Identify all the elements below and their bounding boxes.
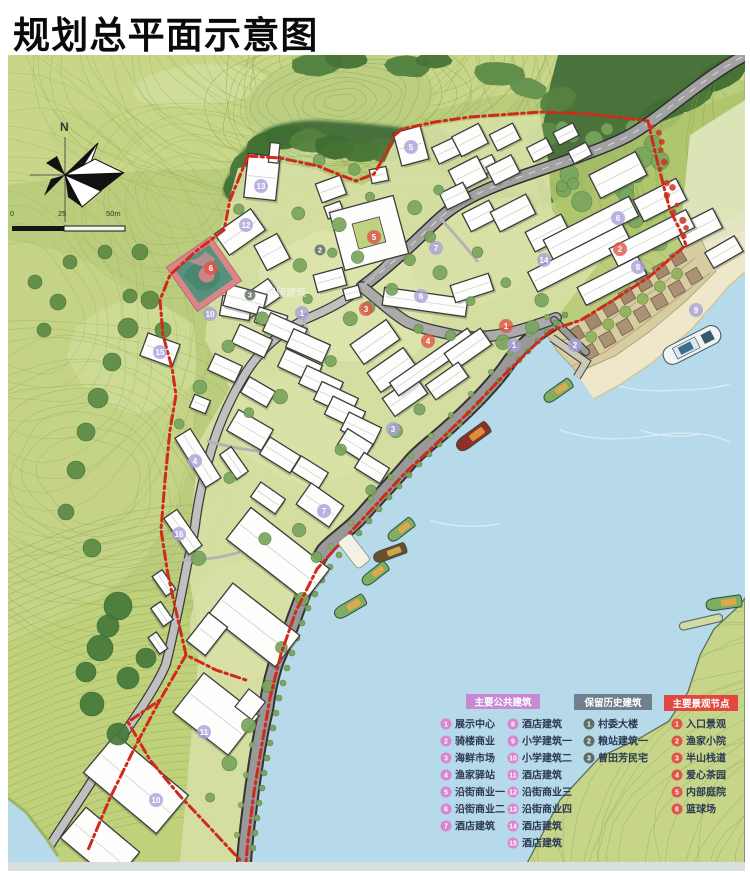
svg-text:酒店建筑: 酒店建筑 <box>455 820 495 833</box>
svg-text:7: 7 <box>322 507 327 516</box>
svg-text:沿街商业三: 沿街商业三 <box>522 786 572 799</box>
svg-text:沿街商业二: 沿街商业二 <box>455 803 505 816</box>
svg-text:主要公共建筑: 主要公共建筑 <box>474 697 532 709</box>
svg-text:2: 2 <box>618 245 623 254</box>
svg-text:10: 10 <box>206 310 215 319</box>
svg-text:展示中心: 展示中心 <box>455 718 495 731</box>
svg-text:保留建筑: 保留建筑 <box>266 286 306 299</box>
svg-text:酒店建筑: 酒店建筑 <box>522 718 562 731</box>
svg-text:3: 3 <box>248 293 252 300</box>
svg-text:半山栈道: 半山栈道 <box>686 752 726 765</box>
svg-text:4: 4 <box>426 337 431 346</box>
svg-text:8: 8 <box>636 263 641 272</box>
svg-text:沿街商业四: 沿街商业四 <box>522 803 572 816</box>
svg-text:骑楼商业: 骑楼商业 <box>455 735 495 748</box>
svg-text:N: N <box>60 120 69 134</box>
svg-text:25: 25 <box>58 209 66 218</box>
svg-text:小学建筑二: 小学建筑二 <box>521 752 572 765</box>
svg-text:15: 15 <box>156 348 165 357</box>
svg-text:2: 2 <box>318 248 322 255</box>
svg-text:曾田芳民宅: 曾田芳民宅 <box>598 752 648 765</box>
svg-text:1: 1 <box>444 722 448 729</box>
svg-text:7: 7 <box>434 244 439 253</box>
svg-text:3: 3 <box>391 425 396 434</box>
svg-text:10: 10 <box>152 796 161 805</box>
svg-text:16: 16 <box>175 530 184 539</box>
svg-text:小学建筑一: 小学建筑一 <box>521 735 572 748</box>
svg-text:9: 9 <box>511 739 515 746</box>
svg-text:3: 3 <box>444 756 448 763</box>
svg-text:11: 11 <box>509 773 517 780</box>
svg-text:1: 1 <box>587 722 591 729</box>
svg-text:酒店建筑: 酒店建筑 <box>522 820 562 833</box>
svg-text:2: 2 <box>444 739 448 746</box>
svg-text:酒店建筑: 酒店建筑 <box>522 769 562 782</box>
svg-text:1: 1 <box>512 341 517 350</box>
svg-text:5: 5 <box>372 233 377 242</box>
svg-text:篮球场: 篮球场 <box>685 803 716 816</box>
svg-text:9: 9 <box>694 306 699 315</box>
svg-text:13: 13 <box>257 182 266 191</box>
svg-text:2: 2 <box>587 739 591 746</box>
svg-text:12: 12 <box>242 221 251 230</box>
svg-text:村委大楼: 村委大楼 <box>598 718 638 731</box>
svg-text:3: 3 <box>587 756 591 763</box>
svg-text:渔家小院: 渔家小院 <box>686 735 726 748</box>
svg-text:内部庭院: 内部庭院 <box>686 786 726 799</box>
svg-text:0: 0 <box>10 209 14 218</box>
svg-text:14: 14 <box>509 824 517 831</box>
svg-text:保留历史建筑: 保留历史建筑 <box>583 697 642 709</box>
svg-text:1: 1 <box>300 309 305 318</box>
svg-text:5: 5 <box>409 143 414 152</box>
svg-text:13: 13 <box>509 807 517 814</box>
svg-text:规划总平面示意图: 规划总平面示意图 <box>13 15 319 56</box>
svg-text:12: 12 <box>509 790 517 797</box>
svg-text:爱心茶园: 爱心茶园 <box>686 769 726 782</box>
svg-text:6: 6 <box>444 807 448 814</box>
svg-text:5: 5 <box>675 790 679 797</box>
svg-text:14: 14 <box>540 256 549 265</box>
svg-text:6: 6 <box>209 264 214 273</box>
svg-text:11: 11 <box>200 728 209 737</box>
svg-text:7: 7 <box>444 824 448 831</box>
svg-text:沿街商业一: 沿街商业一 <box>455 786 505 799</box>
svg-text:15: 15 <box>509 841 517 848</box>
svg-text:4: 4 <box>193 457 198 466</box>
svg-text:10: 10 <box>509 756 517 763</box>
svg-text:粮站建筑一: 粮站建筑一 <box>598 735 648 748</box>
svg-text:渔家驿站: 渔家驿站 <box>455 769 495 782</box>
svg-text:3: 3 <box>675 756 679 763</box>
svg-text:酒店建筑: 酒店建筑 <box>522 837 562 850</box>
svg-text:6: 6 <box>419 292 424 301</box>
svg-text:5: 5 <box>444 790 448 797</box>
svg-text:4: 4 <box>444 773 448 780</box>
svg-text:8: 8 <box>511 722 515 729</box>
svg-text:主要景观节点: 主要景观节点 <box>672 698 730 710</box>
svg-text:4: 4 <box>675 773 679 780</box>
svg-text:1: 1 <box>675 722 679 729</box>
svg-text:50m: 50m <box>106 209 121 218</box>
svg-text:入口景观: 入口景观 <box>686 719 726 731</box>
svg-text:2: 2 <box>573 341 578 350</box>
svg-text:6: 6 <box>616 214 621 223</box>
svg-text:3: 3 <box>364 305 369 314</box>
svg-text:1: 1 <box>504 322 509 331</box>
svg-text:2: 2 <box>675 739 679 746</box>
svg-text:海鲜市场: 海鲜市场 <box>455 752 495 765</box>
svg-text:6: 6 <box>675 807 679 814</box>
